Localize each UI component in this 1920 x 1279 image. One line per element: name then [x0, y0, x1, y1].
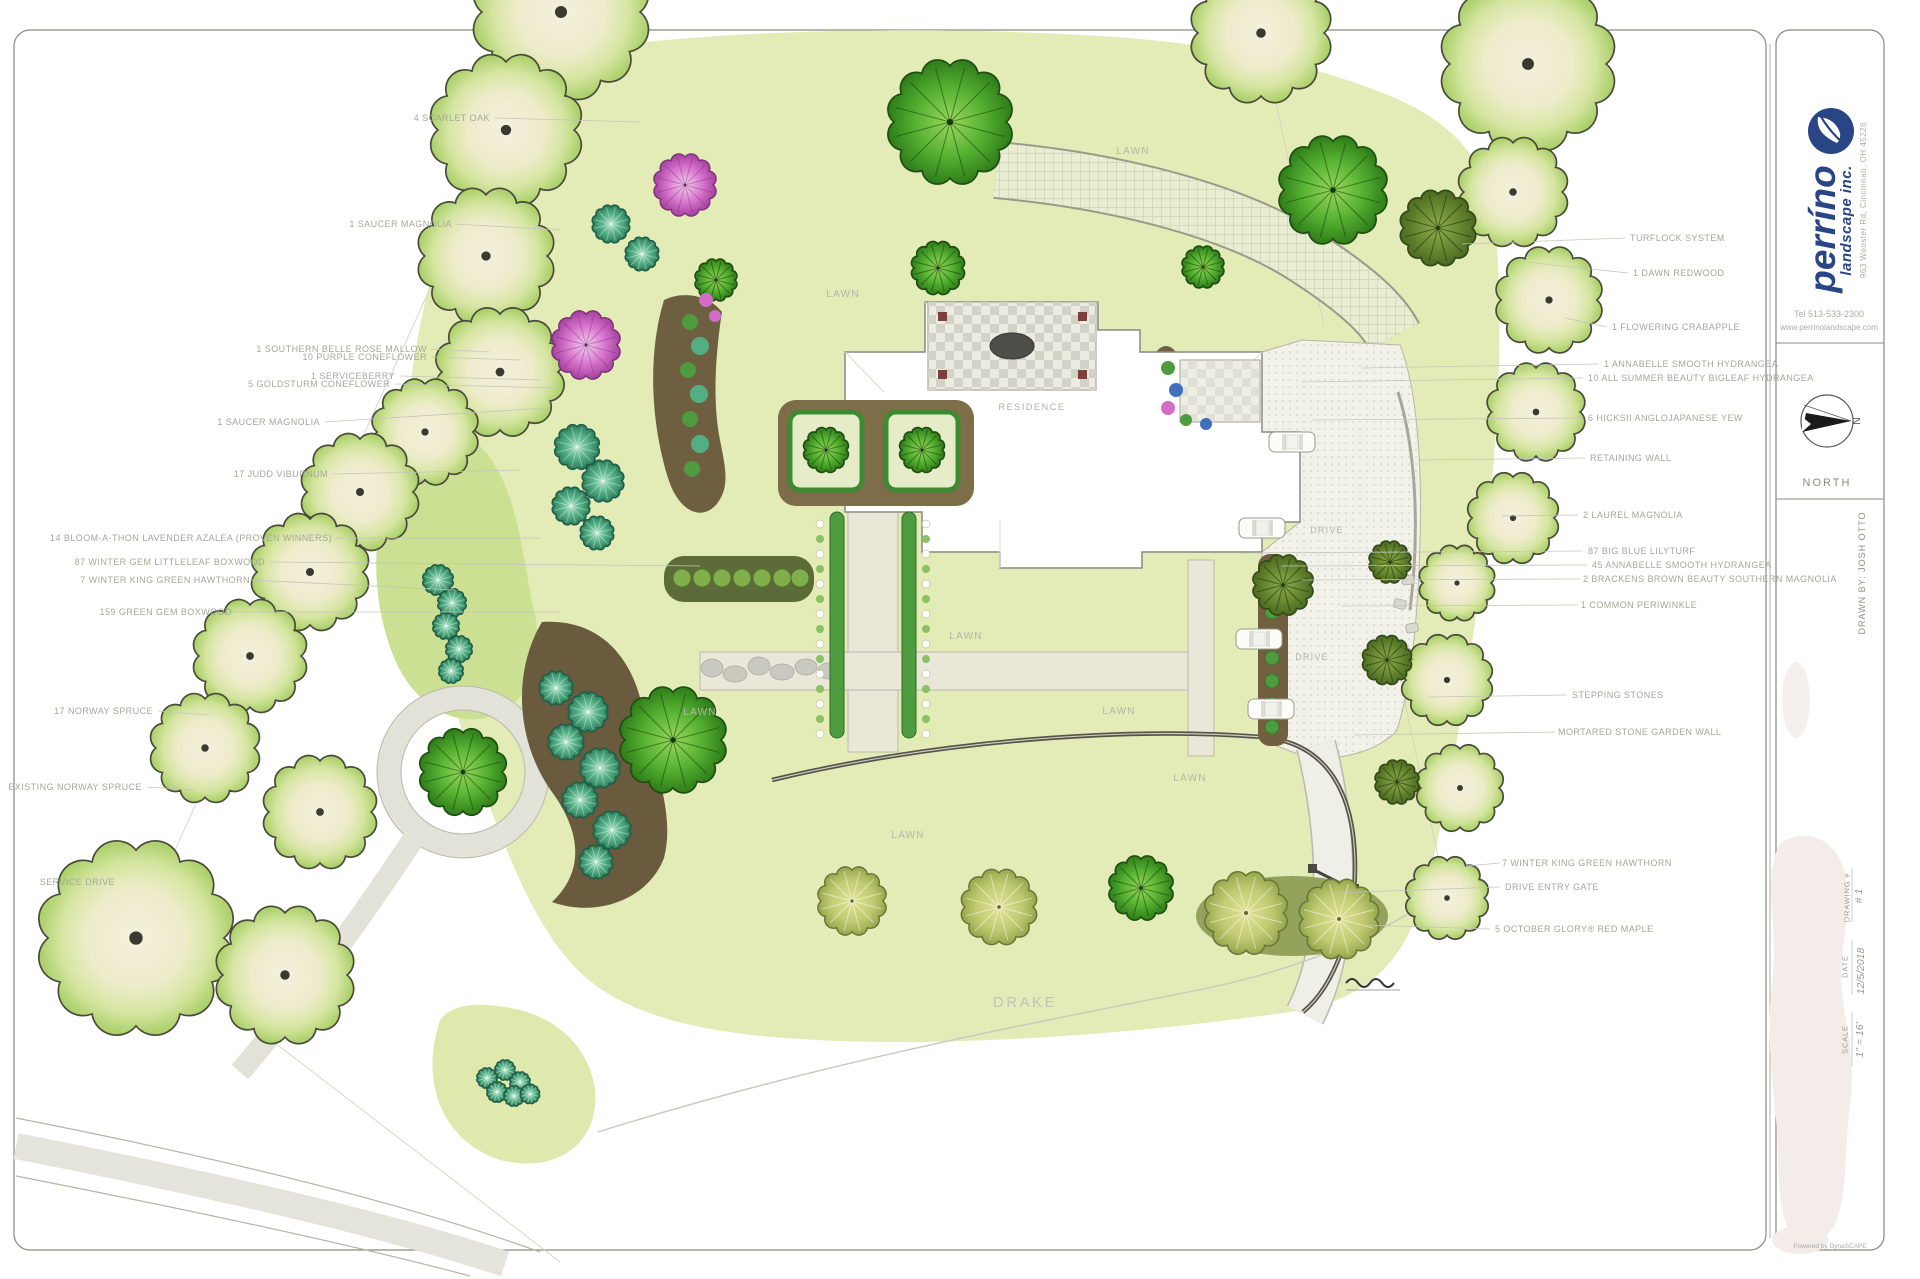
drawing-number-label: DRAWING # [1843, 858, 1852, 938]
plant-label: TURFLOCK SYSTEM [1630, 233, 1725, 243]
plant-label: 1 FLOWERING CRABAPPLE [1612, 322, 1740, 332]
lawn-text: LAWN [926, 631, 1006, 642]
plant-label: 1 SAUCER MAGNOLIA [217, 417, 320, 427]
plant-label: 159 GREEN GEM BOXWOOD [100, 607, 232, 617]
plant-label: DRIVE ENTRY GATE [1505, 882, 1599, 892]
plant-label: 6 HICKSII ANGLOJAPANESE YEW [1588, 413, 1743, 423]
plant-label: RETAINING WALL [1590, 453, 1671, 463]
drive-text: DRIVE [1297, 525, 1357, 535]
drawing-number-value: # 1 [1853, 876, 1865, 916]
lawn-text: LAWN [868, 830, 948, 841]
software-credit: Powered by DynaSCAPE [1770, 1243, 1890, 1250]
plant-label: 5 GOLDSTURM CONEFLOWER [248, 379, 390, 389]
plant-label: 45 ANNABELLE SMOOTH HYDRANGEA [1592, 560, 1772, 570]
street-name-text: DRAKE [975, 994, 1075, 1011]
plant-label: 7 WINTER KING GREEN HAWTHORN [80, 575, 250, 585]
brand-name: perríno [1807, 165, 1838, 292]
landscape-plan-sheet: LAWN LAWN LAWN LAWN LAWN LAWN LAWN RESID… [0, 0, 1920, 1279]
plant-label: 10 ALL SUMMER BEAUTY BIGLEAF HYDRANGEA [1588, 373, 1814, 383]
north-label: NORTH [1792, 477, 1862, 489]
logo-text: perríno landscape inc. [1807, 165, 1855, 292]
drawn-by-field: DRAWN BY: JOSH OTTO [1857, 488, 1869, 658]
lawn-text: LAWN [1150, 773, 1230, 784]
plant-label: 2 BRACKENS BROWN BEAUTY SOUTHERN MAGNOLI… [1583, 574, 1837, 584]
drive-text: DRIVE [1282, 652, 1342, 662]
plant-label: 17 JUDD VIBURNUM [234, 469, 328, 479]
date-label: DATE [1841, 947, 1850, 987]
plant-label: 1 DAWN REDWOOD [1633, 268, 1724, 278]
plant-label: 5 OCTOBER GLORY® RED MAPLE [1495, 924, 1654, 934]
rear-patio [928, 302, 1096, 390]
plant-label: EXISTING NORWAY SPRUCE [8, 782, 142, 792]
plant-label: 4 SCARLET OAK [414, 113, 490, 123]
plant-label: 1 ANNABELLE SMOOTH HYDRANGEA [1604, 359, 1778, 369]
plant-label: SERVICE DRIVE [40, 877, 115, 887]
plant-label: 1 COMMON PERIWINKLE [1581, 600, 1697, 610]
brand-tagline: landscape inc. [1838, 165, 1855, 292]
company-address: 963 Wooster Rd, Cincinnati, OH 45226 [1859, 90, 1873, 310]
plant-label: 2 LAUREL MAGNOLIA [1583, 510, 1683, 520]
scale-value: 1" = 16' [1854, 1000, 1866, 1080]
company-phone: Tel 513-533-2300 [1769, 309, 1889, 319]
plant-label: STEPPING STONES [1572, 690, 1664, 700]
lawn-text: LAWN [803, 289, 883, 300]
company-website: www.perrinolandscape.com [1769, 323, 1889, 332]
compass-n-letter: N [1852, 411, 1864, 431]
plant-label: 14 BLOOM-A-THON LAVENDER AZALEA (Proven … [50, 533, 332, 543]
residence-text: RESIDENCE [972, 402, 1092, 412]
lawn-text: LAWN [1079, 706, 1159, 717]
plant-label: 7 WINTER KING GREEN HAWTHORN [1502, 858, 1672, 868]
smudge-watermark [1769, 662, 1851, 1254]
north-compass [1801, 395, 1853, 447]
plant-label: 10 PURPLE CONEFLOWER [302, 352, 427, 362]
plant-label: 87 BIG BLUE LILYTURF [1588, 546, 1695, 556]
plant-label: MORTARED STONE GARDEN WALL [1558, 727, 1721, 737]
lawn-text: LAWN [660, 707, 740, 718]
plant-label: 87 WINTER GEM LITTLELEAF BOXWOOD [75, 557, 265, 567]
scale-label: SCALE [1841, 1018, 1850, 1062]
plant-label: 1 SAUCER MAGNOLIA [349, 219, 452, 229]
leaf-logo-icon [1807, 107, 1855, 155]
plant-label: 17 NORWAY SPRUCE [54, 706, 153, 716]
lawn-text: LAWN [1093, 146, 1173, 157]
